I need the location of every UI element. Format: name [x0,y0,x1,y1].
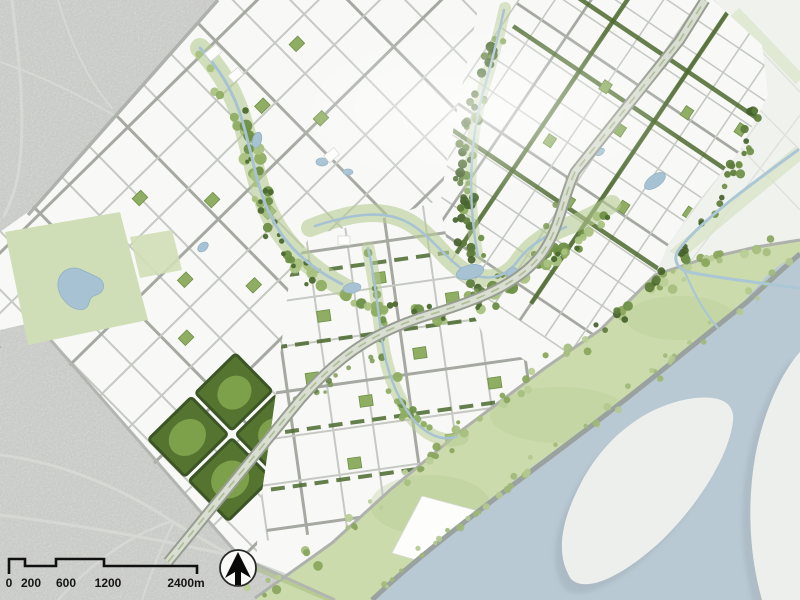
tree-blob [603,403,611,411]
tree-blob [460,429,469,438]
tree-blob [768,269,775,276]
scale-tick-label: 1200 [95,576,122,590]
tree-blob [272,585,281,594]
tree-blob [370,358,375,363]
tree-blob [291,264,296,269]
tree-blob [668,284,678,294]
tree-blob [623,301,633,311]
tree-blob [767,235,775,243]
tree-blob [504,486,511,493]
tree-blob [452,425,461,434]
tree-blob [716,257,722,263]
tree-blob [580,234,587,241]
tree-blob [657,267,665,275]
tree-blob [528,368,535,375]
tree-blob [593,322,598,327]
tree-blob [553,443,557,447]
tree-blob [390,577,395,582]
tree-blob [478,235,484,241]
tree-blob [523,470,531,478]
tree-blob [593,420,600,427]
tree-blob [669,356,676,363]
tree-blob [304,282,308,286]
tree-blob [615,406,622,413]
tree-blob [399,568,403,572]
tree-blob [574,246,579,251]
tree-blob [441,316,446,321]
tree-blob [746,145,752,151]
tree-blob [245,160,249,164]
master-plan-map: 0 200 600 1200 2400m [0,0,800,600]
tree-blob [785,258,793,266]
tree-blob [433,453,439,459]
tree-blob [622,316,629,323]
tree-blob [404,479,411,486]
tree-blob [755,296,760,301]
tree-blob [763,248,771,256]
scale-tick-label: 600 [56,576,76,590]
tree-blob [463,217,470,224]
tree-blob [346,365,351,370]
tree-blob [303,549,310,556]
tree-blob [258,207,265,214]
tree-blob [309,277,316,284]
tree-blob [510,473,517,480]
tree-blob [584,424,588,428]
tree-blob [745,287,752,294]
tree-blob [477,416,483,422]
tree-blob [252,196,258,202]
tree-blob [346,525,351,530]
tree-blob [719,195,725,201]
tree-blob [649,368,654,373]
tree-blob [492,302,500,310]
pocket-park [488,376,502,389]
tree-blob [722,184,728,190]
north-arrow [220,550,256,586]
tree-blob [751,108,758,115]
tree-blob [740,249,749,258]
tree-blob [726,160,735,169]
tree-blob [522,375,530,383]
pocket-park [359,395,373,408]
tree-blob [555,251,560,256]
tree-blob [426,457,434,465]
tree-blob [268,189,274,195]
tree-blob [453,217,459,223]
tree-blob [730,170,737,177]
tree-blob [368,499,372,503]
tree-blob [415,546,420,551]
tree-blob [333,373,338,378]
tree-blob [263,188,269,194]
scale-tick-label: 200 [21,576,41,590]
tree-blob [483,503,490,510]
tree-blob [743,138,749,144]
tree-blob [518,390,525,397]
tree-blob [752,245,761,254]
tree-blob [605,215,610,220]
tree-blob [386,388,392,394]
tree-blob [258,200,263,205]
tree-blob [420,553,425,558]
tree-blob [645,282,655,292]
tree-blob [687,340,692,345]
tree-blob [426,424,432,430]
tree-blob [379,305,388,314]
tree-blob [736,169,745,178]
tree-blob [701,258,710,267]
tree-blob [263,234,268,239]
tree-blob [345,514,353,522]
tree-blob [276,575,282,581]
tree-blob [364,302,373,311]
tree-blob [741,151,746,156]
tree-blob [427,304,432,309]
tree-blob [736,308,743,315]
pocket-park [317,310,331,323]
tree-blob [456,523,464,531]
tree-blob [473,511,479,517]
tree-blob [602,327,608,333]
scale-tick-label: 2400m [167,576,204,590]
tree-blob [496,492,503,499]
tree-blob [393,372,403,382]
tree-blob [724,171,731,178]
tree-blob [399,414,406,421]
pocket-park [413,347,427,360]
tree-blob [316,280,327,291]
tree-blob [266,578,271,583]
tree-blob [262,593,267,598]
tree-blob [563,344,572,353]
tree-blob [419,466,424,471]
tree-blob [754,114,762,122]
tree-blob [481,253,486,258]
tree-blob [551,256,557,262]
tree-blob [466,279,475,288]
tree-blob [468,256,476,264]
tree-blob [216,91,224,99]
tree-blob [500,393,506,399]
tree-blob [402,469,408,475]
tree-blob [449,448,454,453]
highlight-wash [270,15,690,205]
tree-blob [543,223,549,229]
tree-blob [313,561,323,571]
tree-blob [681,277,686,282]
tree-blob [456,420,460,424]
tree-blob [409,406,416,413]
tree-blob [457,204,465,212]
tree-blob [524,386,532,394]
tree-blob [281,251,286,256]
tree-blob [385,585,389,589]
tree-blob [263,223,273,233]
tree-blob [504,397,511,404]
tree-blob [543,352,549,358]
tree-blob [433,541,437,545]
tree-blob [323,390,327,394]
tree-blob [230,113,239,122]
tree-blob [351,523,357,529]
tree-blob [701,339,707,345]
tree-blob [436,536,442,542]
tree-blob [708,321,712,325]
scale-tick-label: 0 [6,576,13,590]
tree-blob [465,516,470,521]
tree-blob [392,301,398,307]
tree-blob [625,383,631,389]
tree-blob [740,125,748,133]
tree-blob [584,348,592,356]
tree-blob [445,528,450,533]
tree-blob [657,376,663,382]
tree-blob [469,250,475,256]
tree-blob [670,269,675,274]
tree-blob [432,443,440,451]
tree-blob [682,247,689,254]
tree-blob [379,506,384,511]
map-canvas: 0 200 600 1200 2400m [0,0,800,600]
pocket-park [347,457,361,470]
tree-blob [543,260,551,268]
tree-blob [663,353,668,358]
white-site [338,236,350,245]
tree-blob [652,275,661,284]
tree-blob [561,249,567,255]
tree-blob [613,307,620,314]
tree-blob [242,107,249,114]
tree-blob [454,238,462,246]
tree-blob [582,336,589,343]
tree-blob [528,455,533,460]
tree-blob [597,221,605,229]
tree-blob [736,162,743,169]
